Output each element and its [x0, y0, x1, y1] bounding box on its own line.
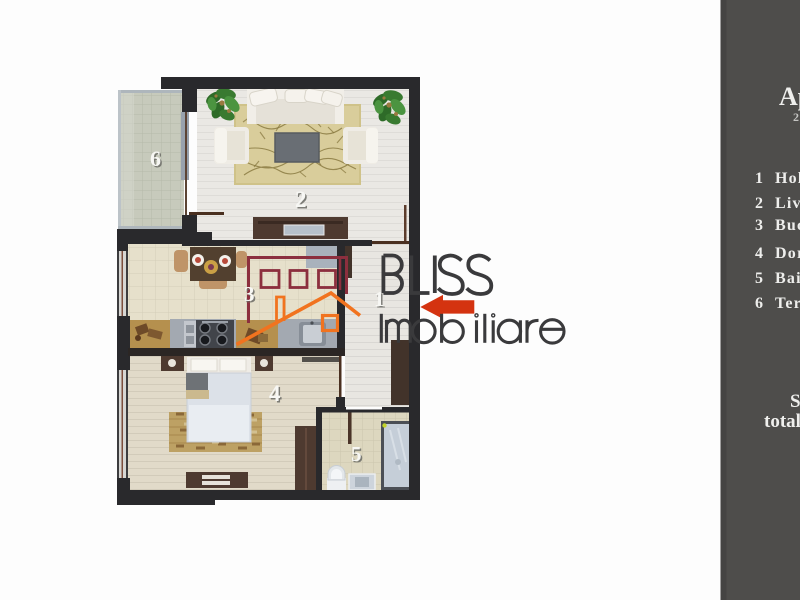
- svg-text:Living: Living: [775, 195, 800, 212]
- svg-text:4: 4: [269, 381, 281, 406]
- svg-text:Suprafata: Suprafata: [790, 391, 800, 412]
- svg-text:4: 4: [755, 245, 763, 262]
- svg-text:Bucatarie: Bucatarie: [775, 217, 800, 234]
- svg-text:5: 5: [351, 442, 362, 466]
- svg-text:2: 2: [755, 195, 763, 212]
- svg-text:1: 1: [374, 287, 385, 311]
- svg-text:2 camere: 2 camere: [793, 110, 800, 124]
- svg-text:6: 6: [755, 295, 763, 312]
- svg-text:Dormitor: Dormitor: [775, 245, 800, 262]
- svg-text:Terasa: Terasa: [775, 295, 800, 312]
- svg-text:6: 6: [150, 146, 161, 171]
- svg-text:totala = 55 mp: totala = 55 mp: [764, 411, 800, 432]
- svg-text:3: 3: [755, 217, 763, 234]
- svg-text:3: 3: [244, 282, 255, 306]
- svg-text:Baie: Baie: [775, 270, 800, 287]
- svg-text:Hol: Hol: [775, 170, 800, 187]
- svg-text:1: 1: [755, 170, 763, 187]
- svg-text:2: 2: [295, 187, 307, 212]
- svg-text:Apartament: Apartament: [779, 82, 800, 111]
- svg-text:5: 5: [755, 270, 763, 287]
